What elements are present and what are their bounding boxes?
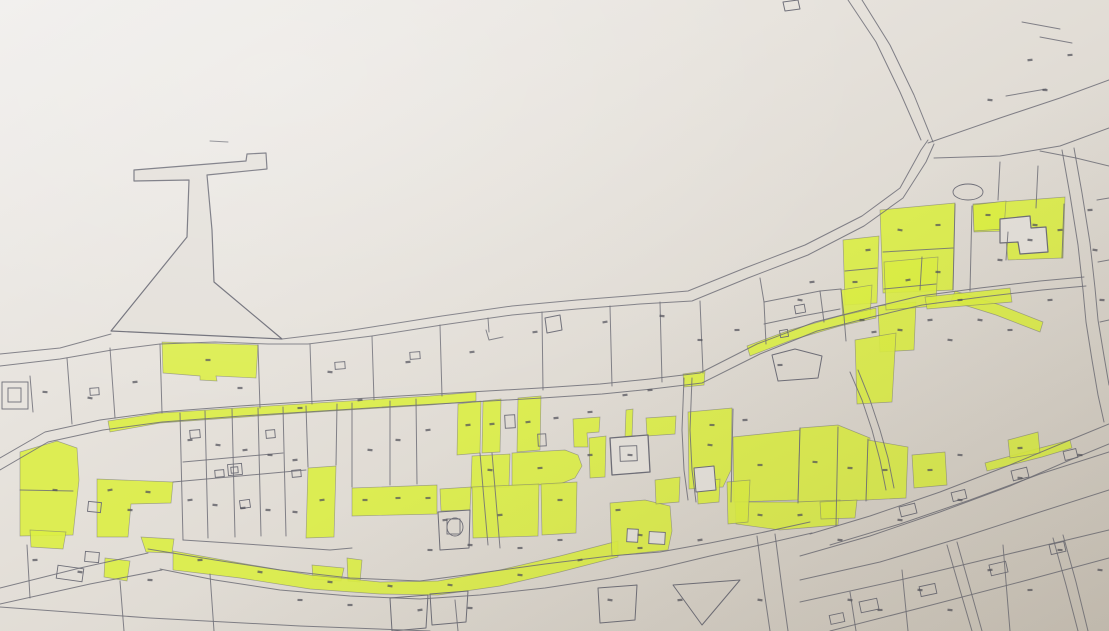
parcel-number-mark xyxy=(327,581,332,584)
parcel-number-mark xyxy=(587,411,592,414)
parcel-number-mark xyxy=(859,319,864,321)
parcel-number-mark xyxy=(1007,329,1012,331)
parcel-number-mark xyxy=(734,329,739,331)
parcel-number-mark xyxy=(467,544,472,546)
parcel-number-mark xyxy=(709,424,714,426)
parcel-number-mark xyxy=(52,489,57,492)
parcel-number-mark xyxy=(42,391,47,394)
parcel-number-mark xyxy=(837,539,842,542)
parcel-number-mark xyxy=(327,371,332,374)
parcel-number-mark xyxy=(777,364,782,366)
parcel-number-mark xyxy=(1099,299,1104,301)
highlighted-parcel xyxy=(646,416,676,436)
highlighted-parcel xyxy=(798,425,870,502)
parcel-number-mark xyxy=(852,281,857,283)
parcel-number-mark xyxy=(517,574,522,577)
parcel-number-mark xyxy=(1047,299,1052,302)
parcel-number-mark xyxy=(1057,549,1062,551)
parcel-number-mark xyxy=(957,299,962,302)
highlighted-parcel xyxy=(625,409,633,438)
parcel-number-mark xyxy=(812,461,817,464)
parcel-number-mark xyxy=(537,467,542,470)
parcel-number-mark xyxy=(742,419,747,421)
highlighted-parcel xyxy=(457,401,481,455)
cadastral-map-photo xyxy=(0,0,1109,631)
parcel-number-mark xyxy=(935,224,940,226)
parcel-number-mark xyxy=(587,454,592,456)
parcel-number-mark xyxy=(517,547,522,549)
parcel-number-mark xyxy=(659,315,664,318)
highlighted-parcel xyxy=(855,333,896,404)
building-footprint xyxy=(694,466,716,492)
parcel-number-mark xyxy=(1017,447,1022,449)
highlighted-parcel xyxy=(655,477,680,504)
parcel-number-mark xyxy=(1077,454,1082,457)
parcel-number-mark xyxy=(677,599,682,602)
highlighted-parcel xyxy=(440,487,471,511)
parcel-number-mark xyxy=(297,599,302,601)
parcel-number-mark xyxy=(427,549,432,551)
parcel-number-mark xyxy=(882,469,887,471)
parcel-number-mark xyxy=(487,469,492,472)
highlighted-parcel xyxy=(306,466,336,538)
highlighted-parcel xyxy=(472,484,539,538)
cadastral-map xyxy=(0,0,1109,631)
parcel-number-mark xyxy=(877,609,882,611)
parcel-number-mark xyxy=(865,249,870,252)
building-footprint xyxy=(627,529,639,543)
highlighted-parcel xyxy=(589,436,606,478)
parcel-number-mark xyxy=(985,214,990,216)
parcel-number-mark xyxy=(553,417,558,420)
parcel-number-mark xyxy=(363,499,368,501)
parcel-number-mark xyxy=(197,559,202,561)
highlighted-parcel xyxy=(30,530,66,549)
parcel-number-mark xyxy=(32,559,37,561)
parcel-number-mark xyxy=(1032,224,1037,227)
parcel-number-mark xyxy=(927,319,932,322)
parcel-number-mark xyxy=(897,329,902,332)
parcel-number-mark xyxy=(1067,54,1072,57)
highlighted-parcel xyxy=(20,441,79,536)
parcel-number-mark xyxy=(467,607,472,609)
parcel-number-mark xyxy=(206,359,211,361)
parcel-number-mark xyxy=(647,389,652,392)
parcel-number-mark xyxy=(292,459,297,462)
highlighted-parcel xyxy=(482,399,501,453)
parcel-number-mark xyxy=(627,454,632,457)
parcel-number-mark xyxy=(127,509,132,511)
parcel-number-mark xyxy=(957,454,962,457)
parcel-number-mark xyxy=(187,439,192,442)
parcel-number-mark xyxy=(212,504,217,507)
parcel-number-mark xyxy=(395,439,400,441)
parcel-number-mark xyxy=(147,579,152,581)
parcel-number-mark xyxy=(997,259,1002,262)
parcel-number-mark xyxy=(265,509,270,511)
parcel-number-mark xyxy=(292,511,297,514)
parcel-number-mark xyxy=(1087,209,1092,211)
parcel-number-mark xyxy=(558,499,563,501)
parcel-number-mark xyxy=(947,609,952,612)
parcel-number-mark xyxy=(927,469,932,471)
parcel-number-mark xyxy=(637,547,642,549)
parcel-number-mark xyxy=(405,361,410,364)
parcel-number-mark xyxy=(935,271,940,273)
parcel-number-mark xyxy=(697,339,702,341)
parcel-number-mark xyxy=(1042,89,1047,91)
parcel-number-mark xyxy=(557,539,562,541)
parcel-number-mark xyxy=(297,407,302,409)
parcel-number-mark xyxy=(267,454,272,457)
highlighted-parcel xyxy=(820,500,857,519)
parcel-number-mark xyxy=(758,464,763,466)
parcel-number-mark xyxy=(465,424,470,427)
parcel-number-mark xyxy=(1057,229,1062,232)
parcel-number-mark xyxy=(425,497,430,499)
parcel-number-mark xyxy=(847,467,852,469)
parcel-number-mark xyxy=(238,387,243,389)
highlighted-parcel xyxy=(517,396,541,452)
parcel-number-mark xyxy=(395,497,400,499)
building-footprint xyxy=(649,532,666,545)
parcel-number-mark xyxy=(615,509,620,512)
parcel-number-mark xyxy=(1027,589,1032,591)
highlighted-parcel xyxy=(541,482,577,535)
parcel-number-mark xyxy=(348,604,353,606)
highlighted-parcel xyxy=(727,480,750,524)
